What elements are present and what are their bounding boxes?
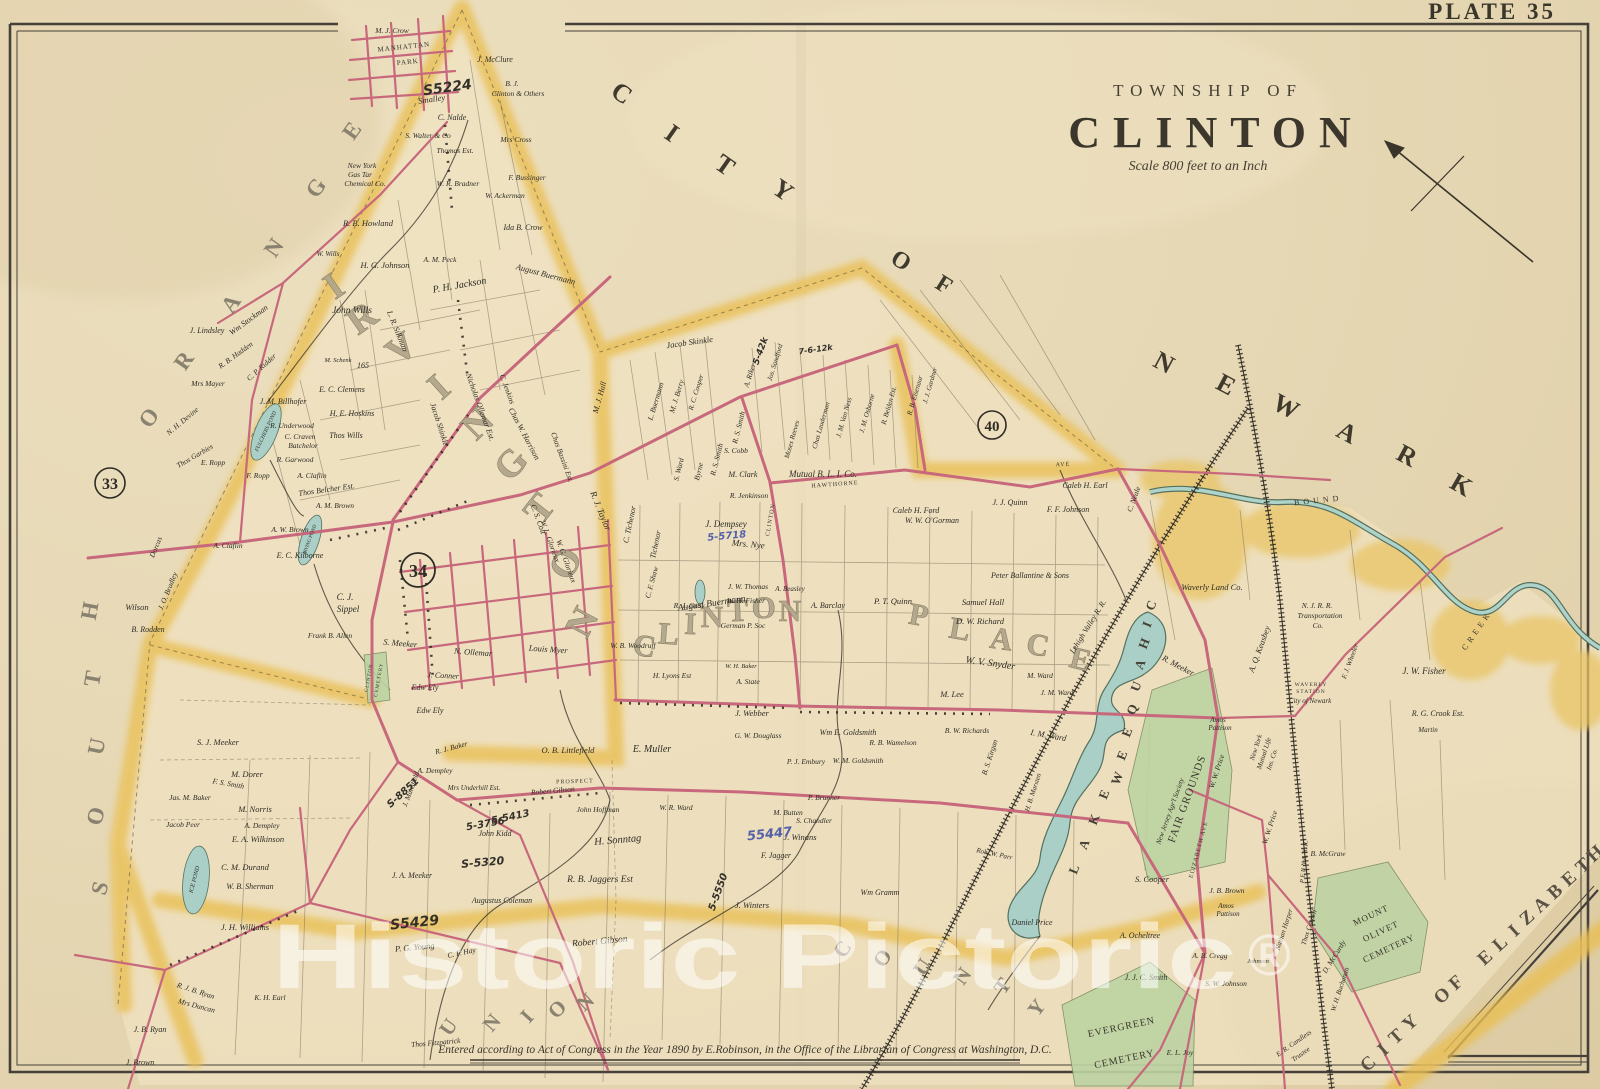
- owner-label: B. W. Richards: [945, 726, 990, 735]
- owner-label: J. W. Thomas: [728, 582, 768, 591]
- boundary-letter: O: [81, 804, 110, 828]
- owner-label: J. M. Billhofer: [260, 397, 308, 406]
- owner-label: R. Underwood: [269, 421, 314, 430]
- feature-label: WAVERLY: [1295, 682, 1328, 688]
- owner-label: R. J. Gray: [673, 601, 705, 610]
- boundary-letter: O: [133, 403, 164, 432]
- owner-label: A. Dempley: [244, 821, 281, 830]
- owner-label: S. Cooper: [1135, 874, 1170, 884]
- boundary-letter: T: [79, 669, 106, 688]
- boundary-letter: H: [76, 600, 104, 622]
- owner-label: J. J. Quinn: [992, 498, 1027, 507]
- owner-label: C. M. Durand: [221, 862, 269, 872]
- owner-label: J. Dempsey: [705, 519, 746, 529]
- owner-label: M. Ward: [1026, 671, 1053, 680]
- owner-label: Jas. M. Baker: [169, 793, 211, 802]
- owner-label: S. Walter & Co: [405, 131, 451, 140]
- owner-label: J. B. Brown: [1209, 886, 1244, 895]
- owner-label: N. H. Devine: [164, 405, 201, 438]
- owner-label: R. B. Hadden: [216, 339, 255, 371]
- owner-label: S. Chandler: [796, 816, 832, 825]
- owner-label: F. Ropp: [245, 471, 269, 480]
- title-township-of: TOWNSHIP OF: [1113, 81, 1303, 100]
- watermark-text: Historic Pictoric: [272, 906, 1237, 1008]
- owner-label: H. G. Johnson: [359, 260, 409, 270]
- owner-label: A. Claflin: [212, 541, 242, 550]
- owner-label: R. Jenkinson: [729, 491, 769, 500]
- owner-label: E. L. Joy: [1166, 1048, 1194, 1057]
- owner-label: Mrs Mayer: [190, 379, 225, 388]
- feature-label: STATION: [1296, 689, 1325, 695]
- plate-number: PLATE 35: [1428, 0, 1556, 24]
- owner-label: M. J. Crow: [374, 26, 408, 35]
- owner-label: P. T. Quinn: [873, 596, 912, 606]
- owner-label: Thos Wills: [329, 431, 363, 440]
- boundary-letter: W: [1268, 388, 1305, 426]
- owner-label: M. Clark: [728, 470, 758, 479]
- owner-label: P. Brunner: [807, 793, 840, 802]
- owner-label: German P. Soc: [721, 621, 766, 630]
- owner-label: W. Ackerman: [485, 191, 525, 200]
- owner-label: Mutual B. L. I. Co.: [788, 469, 857, 479]
- owner-label: Thomas Est.: [436, 146, 473, 155]
- boundary-letter: E: [1212, 368, 1241, 402]
- owner-label: A. W. Brown: [270, 525, 309, 534]
- owner-label: Augustus Coleman: [471, 896, 532, 905]
- owner-label: Edw Ely: [411, 683, 439, 692]
- owner-label: Dorcas: [147, 535, 164, 560]
- feature-label: MANHATTAN: [377, 40, 430, 53]
- owner-label: W. B. Woodruff: [610, 641, 656, 650]
- owner-label: W. Wills: [317, 250, 340, 258]
- owner-label: John Hoffman: [577, 805, 620, 814]
- owner-label: A. State: [735, 677, 760, 686]
- owner-label: R. Garwood: [276, 455, 314, 464]
- feature-label: City of Newark: [1289, 697, 1332, 705]
- owner-label: A. Barclay: [810, 601, 845, 610]
- feature-label: AVE: [1056, 462, 1071, 469]
- owner-label: M. Norris: [237, 804, 272, 814]
- owner-label: B. McGraw: [1311, 849, 1346, 858]
- owner-label: M. Dorer: [230, 769, 263, 779]
- owner-label: F. F. Johnson: [1046, 505, 1089, 514]
- owner-label: R. G. Crook Est.: [1411, 709, 1465, 718]
- owner-label: A. M. Peck: [423, 255, 458, 264]
- owner-label: A. Beasley: [774, 585, 805, 593]
- boundary-letter: F: [931, 270, 957, 300]
- owner-label: P. J. Embury: [786, 757, 826, 766]
- owner-label: F. Jagger: [760, 851, 792, 860]
- owner-label: W. H. Baker: [725, 663, 757, 670]
- owner-label: J. A. Meeker: [392, 871, 433, 880]
- owner-label: J. H. Williams: [221, 922, 270, 932]
- owner-label: Mrs Cross: [499, 135, 531, 144]
- feature-label: PARK: [396, 57, 419, 67]
- owner-label: Frank B. Allen: [307, 631, 352, 640]
- owner-label: J. McClure: [477, 55, 513, 64]
- boundary-letter: R: [1392, 438, 1422, 473]
- circled-number: 33: [102, 476, 118, 493]
- owner-label: Batchelor: [288, 441, 318, 450]
- compass-icon: [1385, 141, 1533, 262]
- owner-label: Samuel Hall: [962, 597, 1005, 607]
- owner-label: Caleb H. Ford: [893, 506, 941, 515]
- owner-label: Peter Ballantine & Sons: [990, 571, 1069, 580]
- owner-label: Waverly Land Co.: [1181, 582, 1242, 592]
- title-clinton: CLINTON: [1068, 108, 1364, 157]
- owner-label: Wilson: [125, 602, 148, 612]
- owner-label: W. W. O'Gorman: [905, 516, 959, 525]
- owner-label: R. B. Jaggers Est: [566, 875, 633, 885]
- owner-label: J. B. Ryan: [134, 1025, 167, 1034]
- owner-label: New York: [347, 161, 377, 170]
- owner-label: Ida B. Crow: [502, 223, 543, 232]
- owner-label: C. P. Ridder: [245, 352, 278, 383]
- owner-label: Caleb H. Earl: [1062, 481, 1108, 490]
- owner-label: R. B. Howland: [342, 218, 394, 228]
- boundary-letter: N: [779, 593, 801, 628]
- owner-label: Transportation: [1297, 611, 1342, 620]
- boundary-letter: R: [169, 346, 199, 374]
- owner-label: W. B. Sherman: [226, 882, 273, 891]
- owner-label: H. Lyons Est: [652, 671, 692, 680]
- boundary-letter: N: [1149, 345, 1179, 380]
- owner-label: John Wills: [332, 306, 372, 316]
- owner-label: 165: [357, 361, 369, 370]
- owner-label: Co.: [1313, 621, 1324, 630]
- owner-label: A. M. Brown: [315, 501, 354, 510]
- owner-label: J. Brown: [126, 1058, 155, 1067]
- owner-label: M. Lee: [939, 689, 964, 699]
- owner-label: Martin: [1417, 726, 1438, 734]
- boundary-letter: K: [1445, 467, 1478, 503]
- owner-label: M. Schenk: [323, 357, 351, 364]
- owner-label: E. Ropp: [200, 458, 225, 467]
- owner-label: C. Craven: [285, 432, 316, 441]
- owner-label: G. W. Douglass: [735, 731, 782, 740]
- owner-label: Clinton & Others: [492, 89, 545, 98]
- boundary-letter: L: [657, 615, 680, 651]
- owner-label: W. M. Goldsmith: [833, 756, 884, 765]
- owner-label: Gas Tar: [348, 170, 372, 179]
- owner-label: Sippel: [337, 604, 360, 614]
- owner-label: S. Cobb: [724, 446, 748, 455]
- owner-label: E. C. Clemens: [318, 385, 365, 394]
- owner-label: S. J. Meeker: [197, 737, 240, 747]
- map-canvas: 33 34 40 CITYOFNEWARKSOUTHORANGEIRVINGTO…: [0, 0, 1600, 1089]
- owner-label: E. A. Wilkinson: [231, 834, 284, 844]
- owner-label: A. Claflin: [296, 471, 326, 480]
- owner-label: Chemical Co.: [344, 179, 385, 188]
- owner-label: Wm Gramm: [861, 888, 900, 897]
- owner-label: J. Conner: [427, 670, 460, 681]
- watermark: Historic Pictoric ®: [272, 906, 1291, 1008]
- owner-label: J. Webber: [735, 708, 769, 718]
- owner-label: J. Lindsley: [190, 326, 225, 335]
- owner-label: Jacob Peer: [166, 820, 200, 829]
- copyright-text: Entered according to Act of Congress in …: [437, 1044, 1051, 1056]
- owner-label: J. W. Fisher: [1402, 666, 1446, 676]
- owner-label: J. M. Ward: [1041, 688, 1074, 697]
- owner-label: W. R. Bradner: [437, 179, 480, 188]
- boundary-letter: S: [86, 879, 113, 898]
- owner-label: D. W. Richard: [955, 616, 1005, 626]
- owner-label: R. B. Wamelson: [868, 738, 916, 747]
- circled-number: 34: [409, 561, 427, 581]
- owner-label: B. Rodden: [131, 625, 164, 634]
- owner-label: Mrs Underhill Est.: [447, 784, 501, 792]
- boundary-letter: O: [886, 245, 916, 277]
- owner-label: F. Bussinger: [507, 173, 545, 182]
- owner-label: Pattison: [1207, 724, 1232, 732]
- owner-label: C. J.: [337, 592, 354, 602]
- boundary-letter: U: [83, 735, 111, 757]
- owner-label: Amos: [1209, 716, 1226, 724]
- copyright: Entered according to Act of Congress in …: [437, 1044, 1051, 1063]
- owner-label: B. J.: [505, 79, 519, 88]
- owner-label: Edw Ely: [416, 706, 444, 715]
- watermark-registered-icon: ®: [1248, 923, 1291, 988]
- owner-label: H. E. Hoskins: [329, 409, 374, 418]
- owner-label: Wm E. Goldsmith: [820, 728, 877, 737]
- circled-number: 40: [985, 419, 1000, 435]
- owner-label: E. C. Kilborne: [276, 551, 324, 560]
- owner-label: N. J. R. R.: [1301, 601, 1333, 610]
- owner-label: A. Dempley: [417, 766, 454, 775]
- owner-label: W. H. Fisher: [727, 596, 765, 605]
- boundary-letter: A: [216, 289, 246, 317]
- boundary-letter: A: [1332, 415, 1362, 450]
- owner-label: E. Muller: [632, 744, 671, 755]
- owner-label: O. B. Littlefield: [542, 745, 596, 755]
- owner-label: C. Nalde: [438, 113, 467, 122]
- title-scale: Scale 800 feet to an Inch: [1129, 159, 1268, 174]
- owner-label: W. R. Ward: [659, 803, 693, 812]
